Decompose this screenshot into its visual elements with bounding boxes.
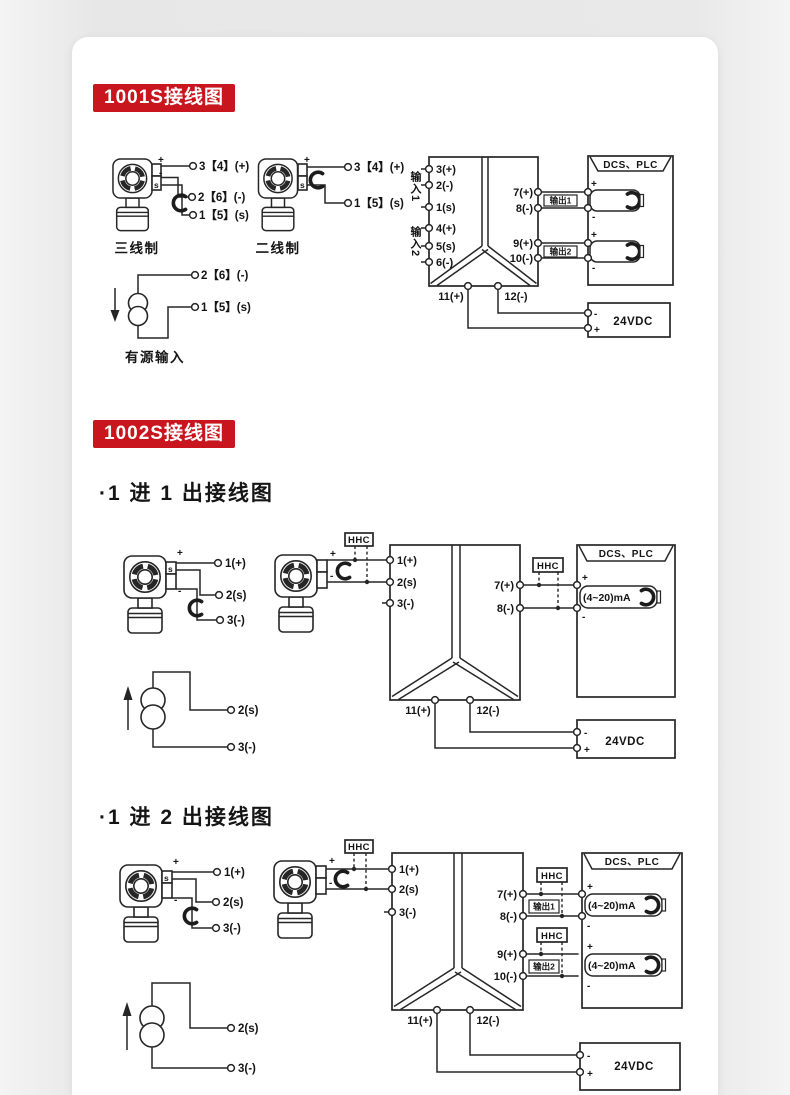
input1-vertical-label: 输入1 [407,171,423,202]
dcs-plc-title: DCS、PLC [603,160,658,171]
terminal-label: 10(-) [510,253,534,265]
section-badge-1002s: 1002S接线图 [93,420,235,448]
plus-mark: + [329,856,335,867]
terminal-label: 1【5】(s) [201,301,251,314]
dcs-plc-title: DCS、PLC [599,549,654,560]
minus-mark: - [587,1051,590,1062]
terminal-label: 3【4】(+) [199,160,249,173]
plus-mark: + [158,155,164,166]
minus-mark: - [587,981,590,992]
minus-mark: - [582,612,585,623]
two-wire-transmitter: + s 3【4】(+) 1【5】(s) 二线制 [256,155,405,256]
twist-icon [337,563,349,579]
transmitter: + s - 1(+) 2(s) 3(-) [120,857,245,942]
twist-icon [189,600,201,616]
terminal-label: 1(+) [399,864,419,876]
three-wire-transmitter: + - s 3【4】(+) 2【6】(-) 1【5】(s) 三线制 [113,155,249,256]
dcs-plc-box: DCS、PLC + - + - [585,156,673,285]
wires [152,983,228,1068]
terminal-label: 2(s) [226,590,247,602]
three-wire-label: 三线制 [115,240,160,256]
terminal-label: 12(-) [504,291,528,303]
s-mark: s [168,564,173,574]
plus-mark: + [587,942,593,953]
hhc-label: HHC [537,561,559,572]
terminal-label: 5(s) [436,241,456,253]
minus-mark: - [330,571,333,582]
hhc-label: HHC [541,931,563,942]
terminal-label: 3(-) [223,923,241,935]
terminal-label: 9(+) [513,238,533,250]
output-wiring: HHC [523,558,573,610]
minus-mark: - [592,212,595,223]
plus-mark: + [582,573,588,584]
up-arrow-icon [123,1002,132,1016]
wires [153,672,228,747]
terminal-label: 1(s) [436,202,456,214]
terminal-label: 1【5】(s) [354,197,404,210]
s-mark: s [164,873,169,883]
plus-mark: + [591,179,597,190]
minus-mark: - [587,921,590,932]
diagram-1002s-1in1out: + s - 1(+) 2(s) 3(-) + - [85,525,705,775]
minus-mark: - [329,878,332,889]
terminal-label: 7(+) [494,580,514,592]
twist-icon [335,871,347,887]
terminal-label: 11(+) [405,705,431,717]
terminal-label: 2【6】(-) [201,269,248,282]
terminal-label: 3【4】(+) [354,161,404,174]
terminal-label: 2(s) [238,705,259,717]
transmitter-with-hhc: + - HHC [274,840,389,938]
power-supply-box: - + 24VDC [435,703,675,758]
isolator-block: 1(+) 2(s) 3(-) 7(+) 8(-) 11(+) 12(-) [382,545,523,717]
dcs-plc-box: DCS、PLC (4~20)mA + - (4~20)mA + - [579,853,682,1008]
plus-mark: + [584,745,590,756]
current-source-input: 2(s) 3(-) [124,672,259,754]
subheading-1in2out: ·1 进 2 出接线图 [99,801,274,831]
plus-mark: + [591,230,597,241]
wires [172,872,214,928]
down-arrow-icon [111,310,120,322]
terminal-label: 10(-) [494,971,518,983]
output2-label: 输出2 [550,247,572,257]
active-input-label: 有源输入 [125,349,185,365]
page: 1001S接线图 + - s [0,0,790,1095]
up-arrow-icon [124,686,133,700]
terminal-label: 3(-) [238,742,256,754]
output-wiring: 输出1 输出2 [541,192,584,258]
terminal-label: 6(-) [436,257,453,269]
plus-mark: + [587,882,593,893]
terminal-label: 3(-) [399,907,416,919]
terminal-label: 12(-) [476,705,500,717]
meter-range: (4~20)mA [588,900,636,912]
dcs-plc-title: DCS、PLC [605,857,660,868]
subheading-1in1out: ·1 进 1 出接线图 [99,477,274,507]
terminal-label: 9(+) [497,949,517,961]
terminal-label: 11(+) [438,291,464,303]
minus-mark: - [178,586,181,597]
terminal-label: 2(s) [238,1023,259,1035]
dcs-plc-box: DCS、PLC (4~20)mA + - [574,545,675,697]
plus-mark: + [587,1069,593,1080]
hhc-label: HHC [348,535,370,546]
terminal-label: 2(s) [399,884,419,896]
power-supply-box: - + 24VDC [437,1013,680,1090]
power-supply-box: - + 24VDC [468,289,670,337]
terminal-label: 2(-) [436,180,453,192]
psu-label: 24VDC [605,736,645,748]
output1-label: 输出1 [550,196,572,206]
s-mark: s [154,180,159,190]
output-wiring: 输出1 输出2 HHC HHC [526,868,578,978]
diagram-1001s: + - s 3【4】(+) 2【6】(-) 1【5】(s) 三线制 + s [85,140,705,382]
two-wire-label: 二线制 [256,240,301,256]
terminal-label: 4(+) [436,223,456,235]
terminal-label: 2(s) [397,577,417,589]
terminal-label: 8(-) [500,911,517,923]
s-mark: s [300,180,305,190]
plus-mark: + [173,857,179,868]
current-source-input: 2(s) 3(-) [123,983,259,1075]
terminal-label: 2(s) [223,897,244,909]
minus-mark: - [584,728,587,739]
terminal-label: 11(+) [407,1015,433,1027]
wires [176,563,217,620]
terminal-label: 2【6】(-) [198,191,245,204]
minus-mark: - [592,263,595,274]
terminal-label: 1(+) [224,867,245,879]
isolator-block: 1(+) 2(s) 3(-) 7(+) 8(-) 9(+) 10(-) 11(+… [384,853,526,1027]
terminal-label: 8(-) [516,203,533,215]
section-badge-1001s: 1001S接线图 [93,84,235,112]
terminal-label: 7(+) [497,889,517,901]
isolator-block: 3(+) 2(-) 1(s) 4(+) 5(s) 6(-) 7(+) 8(-) … [421,157,541,303]
transmitter: + s - 1(+) 2(s) 3(-) [124,548,247,633]
meter-range: (4~20)mA [583,592,631,604]
psu-label: 24VDC [614,1061,654,1073]
minus-mark: - [594,309,597,320]
output1-label: 输出1 [533,902,555,912]
terminal-label: 1(+) [225,558,246,570]
plus-mark: + [330,549,336,560]
terminal-label: 12(-) [476,1015,500,1027]
psu-label: 24VDC [613,316,653,328]
terminal-label: 3(+) [436,164,456,176]
terminal-label: 1(+) [397,555,417,567]
terminal-label: 3(-) [238,1063,256,1075]
plus-mark: + [177,548,183,559]
hhc-label: HHC [348,842,370,853]
twist-icon [184,908,196,924]
minus-mark: - [174,895,177,906]
terminal-label: 8(-) [497,603,514,615]
transmitter-with-hhc: + - HHC [275,533,387,632]
diagram-1002s-1in2out: + s - 1(+) 2(s) 3(-) + - [85,838,705,1095]
terminal-label: 3(-) [397,598,414,610]
input2-vertical-label: 输入2 [407,226,423,257]
plus-mark: + [304,155,310,166]
active-input-source: 2【6】(-) 1【5】(s) 有源输入 [111,269,252,365]
terminal-label: 1【5】(s) [199,209,249,222]
hhc-label: HHC [541,871,563,882]
terminal-label: 3(-) [227,615,245,627]
plus-mark: + [594,325,600,336]
output2-label: 输出2 [533,962,555,972]
terminal-label: 7(+) [513,187,533,199]
meter-range: (4~20)mA [588,960,636,972]
